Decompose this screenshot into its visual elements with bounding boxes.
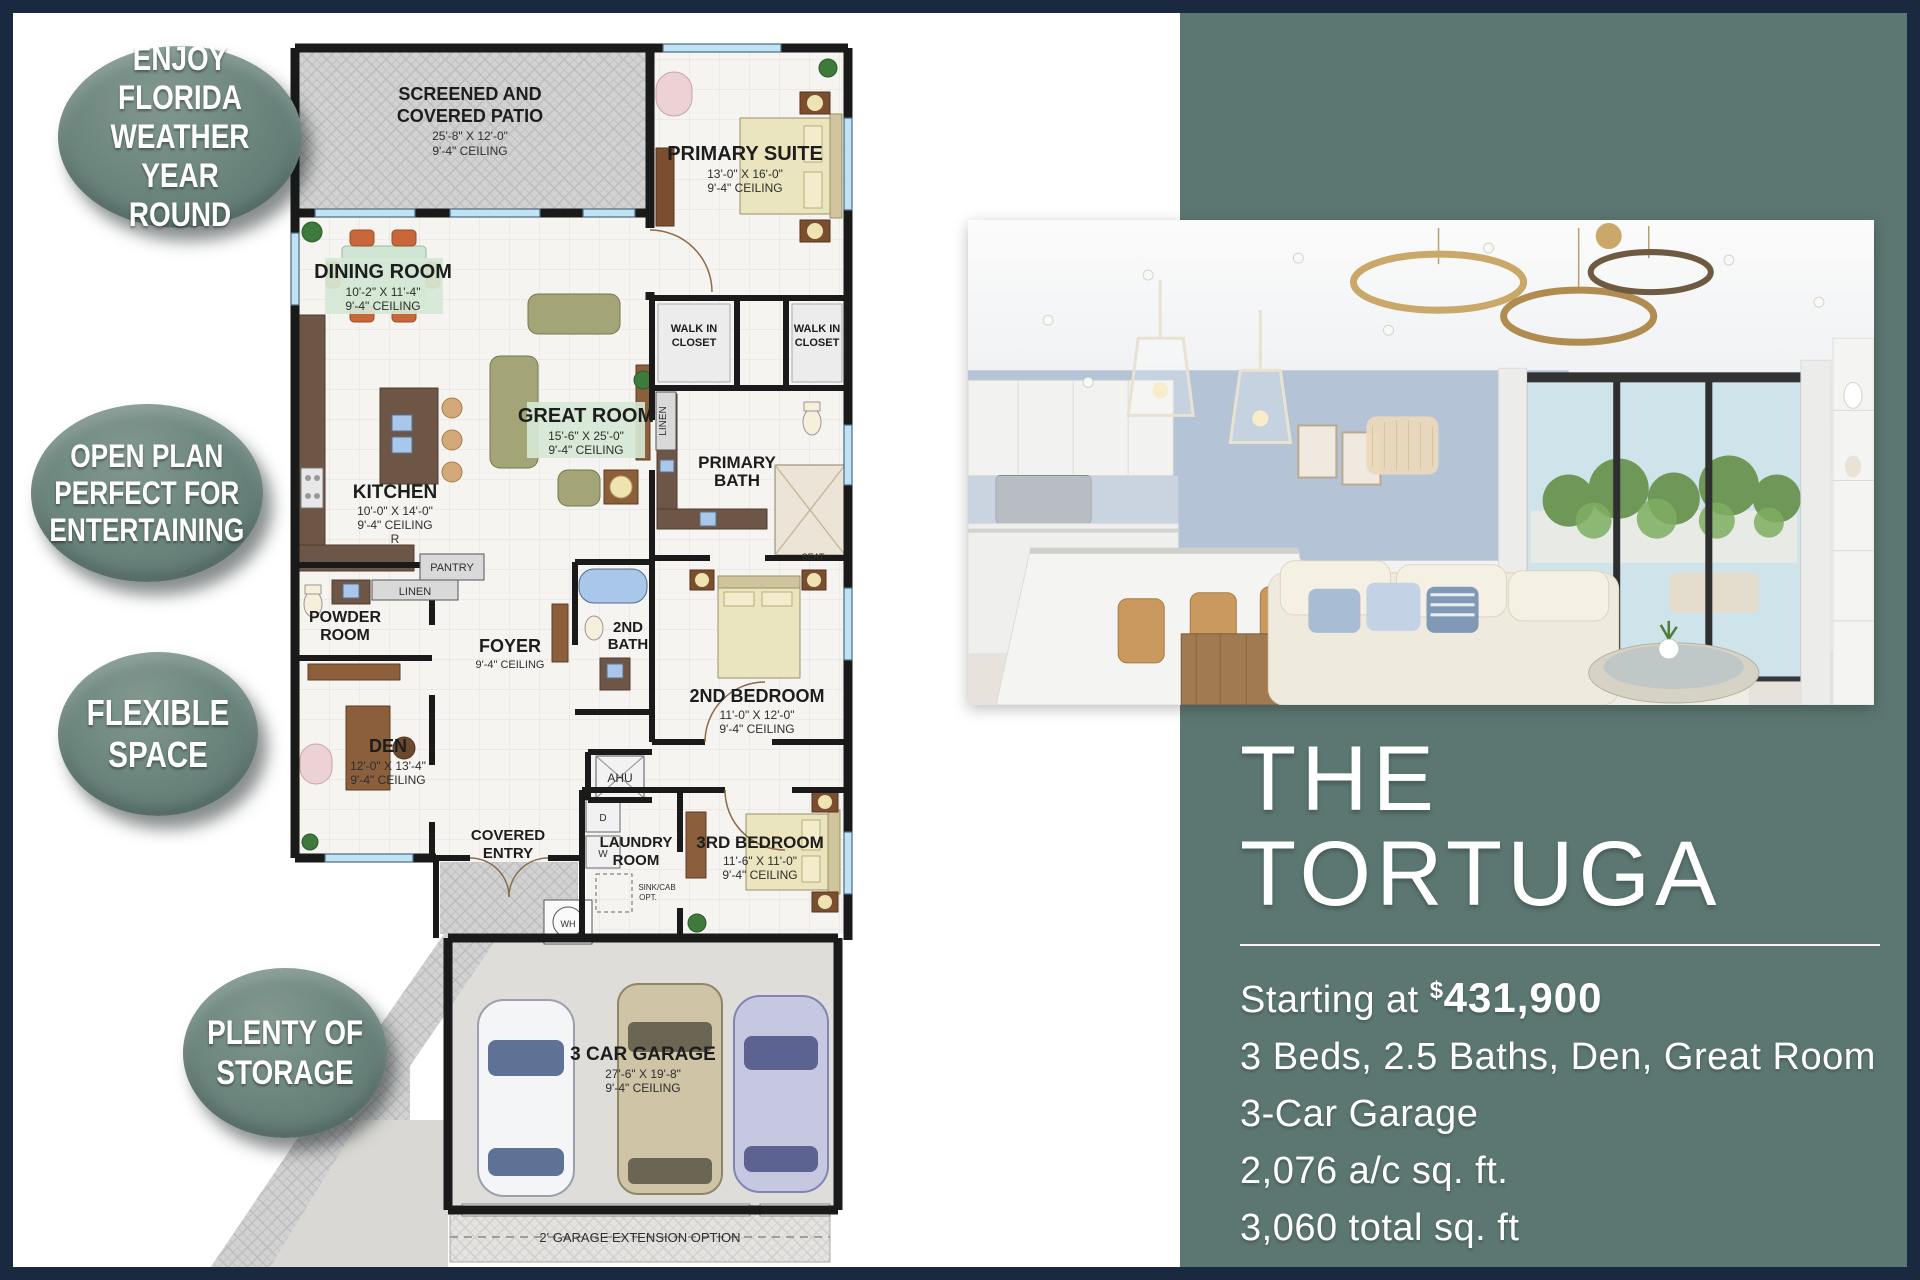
svg-text:9'-4" CEILING: 9'-4" CEILING: [476, 659, 545, 671]
svg-text:CLOSET: CLOSET: [672, 337, 717, 349]
badge-line: FLEXIBLE: [87, 692, 230, 734]
svg-text:DINING ROOM: DINING ROOM: [314, 261, 452, 283]
art-frame: [1298, 425, 1336, 477]
svg-text:9'-4" CEILING: 9'-4" CEILING: [350, 773, 425, 787]
spec-garage: 3-Car Garage: [1240, 1086, 1876, 1143]
svg-text:13'-0" X 16'-0": 13'-0" X 16'-0": [707, 167, 783, 181]
svg-text:12'-0" X 13'-4": 12'-0" X 13'-4": [350, 759, 426, 773]
price-prefix: Starting at: [1240, 979, 1430, 1021]
svg-text:2ND: 2ND: [613, 619, 643, 636]
spec-ac-sqft: 2,076 a/c sq. ft.: [1240, 1143, 1876, 1200]
svg-text:3 CAR GARAGE: 3 CAR GARAGE: [570, 1044, 716, 1065]
svg-text:ENTRY: ENTRY: [483, 845, 533, 862]
flyer-canvas: SCREENED AND COVERED PATIO 25'-8" X 12'-…: [0, 0, 1920, 1280]
badge-line: ROUND: [80, 196, 280, 235]
svg-text:15'-6" X 25'-0": 15'-6" X 25'-0": [548, 429, 624, 443]
svg-text:LAUNDRY: LAUNDRY: [600, 834, 673, 851]
svg-text:25'-8" X 12'-0": 25'-8" X 12'-0": [432, 129, 508, 143]
ahu-label: AHU: [607, 771, 632, 785]
svg-text:ROOM: ROOM: [613, 852, 660, 869]
svg-text:9'-4" CEILING: 9'-4" CEILING: [719, 722, 794, 736]
svg-text:BATH: BATH: [714, 471, 760, 490]
svg-text:27'-6" X 19'-8": 27'-6" X 19'-8": [605, 1067, 681, 1081]
svg-text:R: R: [391, 532, 400, 546]
svg-text:FOYER: FOYER: [479, 636, 541, 656]
svg-text:SCREENED AND: SCREENED AND: [398, 84, 541, 104]
badge-flexible-space: FLEXIBLE SPACE: [58, 652, 258, 816]
sofa: [1268, 561, 1618, 705]
svg-text:11'-0" X 12'-0": 11'-0" X 12'-0": [720, 708, 795, 722]
svg-text:9'-4" CEILING: 9'-4" CEILING: [605, 1081, 680, 1095]
sink-opt-label2: OPT.: [639, 893, 657, 902]
svg-text:9'-4" CEILING: 9'-4" CEILING: [707, 181, 782, 195]
seat-label: SEAT: [802, 552, 825, 562]
curtain: [1801, 360, 1831, 705]
svg-text:BATH: BATH: [608, 636, 649, 653]
pantry-label: PANTRY: [430, 562, 474, 574]
svg-text:WALK IN: WALK IN: [794, 323, 840, 335]
price-line: Starting at $431,900: [1240, 962, 1876, 1029]
svg-text:9'-4" CEILING: 9'-4" CEILING: [722, 868, 797, 882]
wh-label: WH: [561, 919, 576, 929]
badge-line: PLENTY OF: [207, 1013, 363, 1053]
svg-text:2ND BEDROOM: 2ND BEDROOM: [689, 686, 824, 706]
badge-line: SPACE: [87, 734, 230, 776]
room-label-2nd-bath: 2ND BATH: [608, 619, 649, 653]
badge-line: ENTERTAINING: [50, 512, 245, 549]
svg-text:COVERED: COVERED: [471, 827, 545, 844]
plan-title-line2: TORTUGA: [1240, 827, 1721, 922]
badge-line: ENJOY FLORIDA: [80, 40, 280, 118]
price-amount: 431,900: [1444, 974, 1603, 1021]
svg-text:ROOM: ROOM: [320, 627, 370, 644]
spec-total-sqft: 3,060 total sq. ft: [1240, 1200, 1876, 1257]
svg-text:9'-4" CEILING: 9'-4" CEILING: [432, 144, 507, 158]
svg-text:WALK IN: WALK IN: [671, 323, 717, 335]
interior-photo-art: [968, 220, 1874, 705]
sink-opt-label1: SINK/CAB: [638, 883, 675, 892]
svg-text:10'-0" X 14'-0": 10'-0" X 14'-0": [357, 504, 433, 518]
svg-text:KITCHEN: KITCHEN: [353, 482, 437, 503]
washer-label: W: [598, 849, 608, 860]
dryer-label: D: [599, 813, 606, 824]
svg-text:9'-4" CEILING: 9'-4" CEILING: [548, 443, 623, 457]
plan-title-line1: THE: [1240, 732, 1721, 827]
badge-line: STORAGE: [207, 1053, 363, 1093]
interior-photo: [968, 220, 1874, 705]
badge-line: PERFECT FOR: [50, 475, 245, 512]
svg-text:3RD BEDROOM: 3RD BEDROOM: [696, 833, 824, 852]
svg-text:10'-2" X 11'-4": 10'-2" X 11'-4": [346, 285, 421, 299]
currency-symbol: $: [1430, 977, 1444, 1004]
badge-plenty-storage: PLENTY OF STORAGE: [183, 968, 387, 1138]
badge-line: OPEN PLAN: [50, 438, 245, 475]
linen-label: LINEN: [399, 586, 431, 598]
svg-text:POWDER: POWDER: [309, 609, 381, 626]
garage-extension-label: 2' GARAGE EXTENSION OPTION: [539, 1230, 740, 1245]
title-divider: [1240, 944, 1880, 946]
badge-enjoy-florida: ENJOY FLORIDA WEATHER YEAR ROUND: [58, 46, 302, 228]
svg-text:PRIMARY: PRIMARY: [698, 453, 776, 472]
svg-text:9'-4" CEILING: 9'-4" CEILING: [345, 299, 420, 313]
badge-open-plan: OPEN PLAN PERFECT FOR ENTERTAINING: [31, 404, 263, 582]
shelf-unit: [1833, 338, 1874, 705]
pillow: [1366, 583, 1420, 631]
svg-text:PRIMARY SUITE: PRIMARY SUITE: [667, 143, 823, 165]
svg-text:DEN: DEN: [369, 736, 407, 756]
wicker-sofa: [1669, 573, 1759, 613]
plan-details: Starting at $431,900 3 Beds, 2.5 Baths, …: [1240, 962, 1876, 1257]
plan-title: THE TORTUGA: [1240, 732, 1721, 922]
svg-text:COVERED PATIO: COVERED PATIO: [397, 106, 543, 126]
spec-beds-baths: 3 Beds, 2.5 Baths, Den, Great Room: [1240, 1029, 1876, 1086]
svg-text:11'-6" X 11'-0": 11'-6" X 11'-0": [723, 854, 797, 868]
room-label-foyer: FOYER 9'-4" CEILING: [476, 636, 545, 671]
badge-line: WEATHER YEAR: [80, 118, 280, 196]
linen2-label: LINEN: [658, 406, 669, 435]
svg-text:CLOSET: CLOSET: [795, 337, 840, 349]
capiz-chandelier: [1366, 416, 1438, 474]
svg-text:GREAT ROOM: GREAT ROOM: [518, 405, 654, 427]
svg-text:9'-4" CEILING: 9'-4" CEILING: [357, 518, 432, 532]
pillow: [1308, 589, 1360, 633]
